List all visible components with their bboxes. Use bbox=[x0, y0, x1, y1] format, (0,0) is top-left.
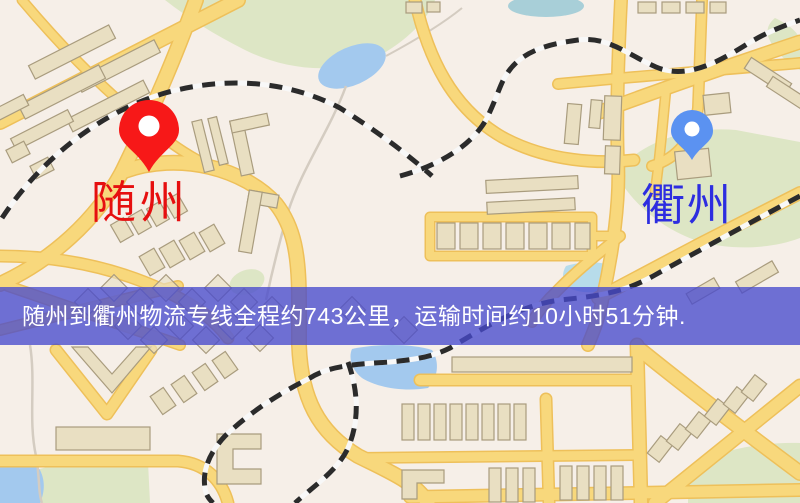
origin-city-label: 随州 bbox=[91, 181, 189, 226]
logistics-route-map: 随州 衢州 随州到衢州物流专线全程约743公里，运输时间约10小时51分钟. bbox=[0, 0, 800, 503]
map-image bbox=[0, 0, 800, 503]
origin-pin-hole bbox=[139, 116, 160, 137]
destination-city-label: 衢州 bbox=[641, 184, 733, 228]
route-info-text: 随州到衢州物流专线全程约743公里，运输时间约10小时51分钟. bbox=[22, 303, 686, 329]
route-info-banner: 随州到衢州物流专线全程约743公里，运输时间约10小时51分钟. bbox=[0, 287, 800, 345]
origin-pin-icon bbox=[114, 99, 184, 175]
destination-pin-hole bbox=[685, 122, 700, 137]
destination-pin-icon bbox=[668, 110, 716, 162]
